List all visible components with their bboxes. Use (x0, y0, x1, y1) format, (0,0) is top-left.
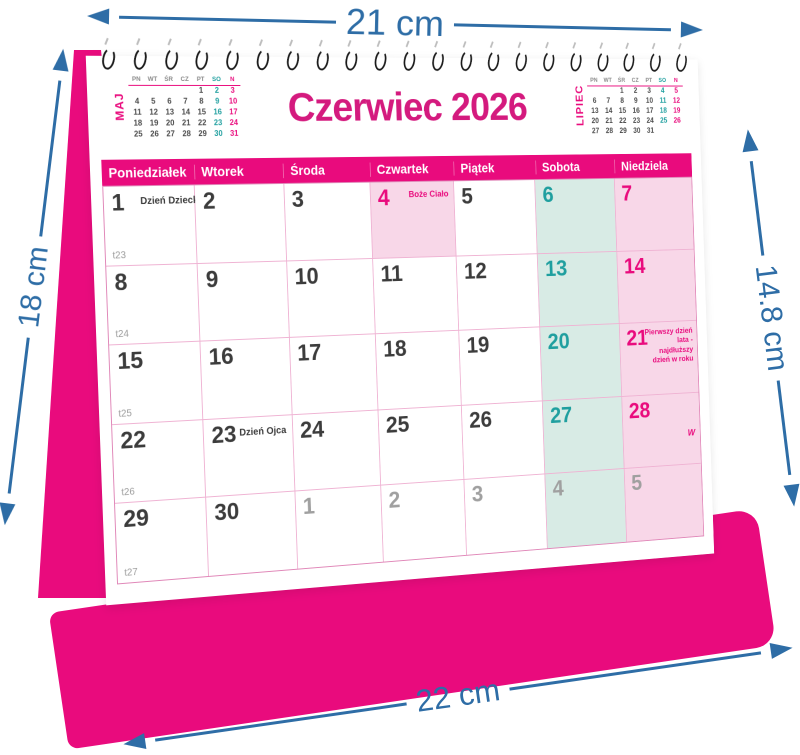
spiral-loop-icon (487, 46, 498, 70)
day-number: 13 (545, 256, 568, 283)
day-cell: 14 (617, 249, 696, 324)
arrow-up-icon (53, 48, 72, 72)
day-cell: 19 (459, 327, 543, 405)
spiral-loop-icon (255, 44, 267, 69)
day-number: 20 (547, 329, 570, 356)
weekday-friday: Piątek (453, 160, 535, 175)
day-cell: 28W (622, 393, 701, 470)
holiday-note: Pierwszy dzień lata - najdłuższy dzień w… (642, 326, 694, 365)
day-cell: 1 (295, 486, 384, 569)
spiral-loop-icon (164, 43, 176, 69)
day-number: 16 (208, 343, 234, 372)
arrow-right-icon (770, 640, 794, 659)
day-number: 26 (469, 407, 493, 434)
day-cell: 13 (538, 252, 619, 328)
spiral-loop-icon (675, 48, 685, 72)
day-number: 4 (377, 185, 390, 212)
day-cell: 3 (284, 183, 373, 261)
spiral-loop-icon (515, 46, 526, 70)
day-cell: 25 (378, 406, 464, 486)
day-number: 29 (123, 505, 150, 535)
day-number: 9 (205, 266, 218, 294)
dimension-top-label: 21 cm (346, 1, 445, 45)
day-cell: 4Boże Ciało (370, 181, 456, 258)
day-cell: 20 (540, 324, 621, 401)
day-cell: 23Dzień Ojca (204, 415, 295, 498)
arrow-up-icon (740, 128, 759, 152)
day-number: 12 (464, 258, 488, 285)
day-number: 3 (291, 187, 304, 214)
day-number: 22 (120, 426, 147, 455)
day-cell: 22t26 (112, 420, 206, 504)
day-number: 2 (203, 188, 216, 216)
month-grid: 1Dzień Dzieckat23234Boże Ciało5678t24910… (102, 177, 704, 585)
spiral-loop-icon (344, 45, 356, 70)
day-number: 6 (542, 183, 554, 209)
day-cell: 24 (292, 410, 381, 492)
day-number: 15 (117, 347, 144, 376)
spiral-loop-icon (315, 45, 327, 70)
spiral-loop-icon (195, 44, 207, 70)
weekday-saturday: Sobota (535, 159, 615, 174)
weekday-tuesday: Wtorek (193, 163, 283, 179)
day-cell: 2 (381, 480, 467, 561)
dimension-right-label: 14.8 cm (748, 263, 795, 373)
day-number: 5 (631, 471, 643, 497)
day-cell: 16 (201, 338, 293, 420)
spiral-loop-icon (132, 43, 144, 69)
day-number: 24 (300, 416, 325, 444)
spiral-loop-icon (459, 46, 470, 70)
spiral-loop-icon (431, 46, 442, 71)
arrow-left-icon (87, 8, 109, 24)
day-number: 8 (114, 269, 128, 297)
spiral-loop-icon (623, 47, 633, 71)
spiral-loop-icon (569, 47, 580, 71)
calendar-page: MAJ PNWTŚRCZPTSON12345678910111213141516… (86, 56, 714, 606)
day-number: 14 (624, 253, 646, 279)
day-number: 2 (388, 488, 401, 515)
day-cell: 10 (287, 259, 376, 339)
arrow-left-icon (122, 733, 146, 752)
week-number: t23 (112, 250, 126, 261)
spiral-loop-icon (225, 44, 237, 70)
holiday-note: Dzień Ojca (239, 425, 286, 438)
week-number: t26 (121, 487, 135, 499)
day-number: 3 (471, 482, 483, 509)
spiral-loop-icon (101, 43, 114, 69)
day-cell: 3 (464, 475, 548, 555)
dimension-height-right: 14.8 cm (731, 127, 800, 508)
weekday-wednesday: Środa (283, 162, 370, 178)
day-cell: 29t27 (115, 498, 209, 583)
spiral-loop-icon (649, 47, 659, 71)
day-cell: 1Dzień Dzieckat23 (103, 185, 198, 266)
day-number: 4 (552, 476, 564, 503)
spiral-loop-icon (285, 44, 297, 69)
day-cell: 17 (289, 334, 378, 415)
week-number: t24 (115, 329, 129, 340)
day-number: 17 (297, 340, 322, 368)
day-cell: 26 (462, 401, 546, 480)
holiday-note: Dzień Dziecka (140, 195, 203, 207)
day-cell: 18 (376, 331, 462, 410)
week-number: t25 (118, 408, 132, 420)
week-number: t27 (124, 567, 138, 579)
holiday-note: Boże Ciało (408, 189, 448, 199)
day-number: 28 (628, 398, 650, 425)
day-number: 19 (466, 332, 490, 359)
day-cell: 9 (198, 261, 290, 342)
day-cell: 15t25 (109, 342, 203, 425)
w-monogram-icon: W (688, 428, 696, 438)
weekday-sunday: Niedziela (614, 158, 692, 173)
day-number: 25 (385, 411, 409, 439)
day-cell: 5 (624, 464, 703, 542)
month-title: Czerwiec 2026 (87, 84, 700, 132)
weekday-thursday: Czwartek (369, 161, 454, 176)
spiral-loop-icon (374, 45, 385, 70)
weekday-monday: Poniedziałek (101, 164, 194, 180)
day-cell: 5 (454, 180, 538, 256)
day-number: 23 (211, 421, 237, 450)
dimension-left-label: 18 cm (12, 244, 56, 329)
product-photo-desk-calendar: MAJ PNWTŚRCZPTSON12345678910111213141516… (0, 0, 800, 755)
day-cell: 2 (195, 184, 287, 264)
day-number: 11 (380, 261, 403, 288)
day-number: 1 (111, 189, 125, 217)
day-cell: 30 (206, 492, 297, 576)
day-cell: 27 (543, 397, 624, 475)
day-cell: 6 (535, 179, 617, 254)
day-number: 1 (302, 493, 315, 521)
day-number: 5 (461, 184, 473, 210)
day-number: 7 (621, 181, 633, 207)
arrow-down-icon (0, 502, 15, 526)
spiral-loop-icon (402, 45, 413, 70)
day-cell: 21Pierwszy dzień lata - najdłuższy dzień… (619, 321, 698, 397)
arrow-right-icon (681, 21, 703, 37)
day-cell: 11 (373, 256, 459, 334)
day-number: 10 (294, 263, 319, 291)
spiral-loop-icon (596, 47, 607, 71)
day-cell: 8t24 (106, 264, 200, 346)
day-cell: 4 (546, 469, 627, 548)
day-number: 30 (214, 499, 240, 528)
day-number: 18 (383, 336, 407, 364)
day-number: 27 (550, 402, 573, 429)
day-cell: 12 (457, 254, 541, 331)
day-cell: 7 (614, 178, 693, 252)
arrow-down-icon (784, 484, 800, 508)
spiral-loop-icon (542, 46, 553, 70)
